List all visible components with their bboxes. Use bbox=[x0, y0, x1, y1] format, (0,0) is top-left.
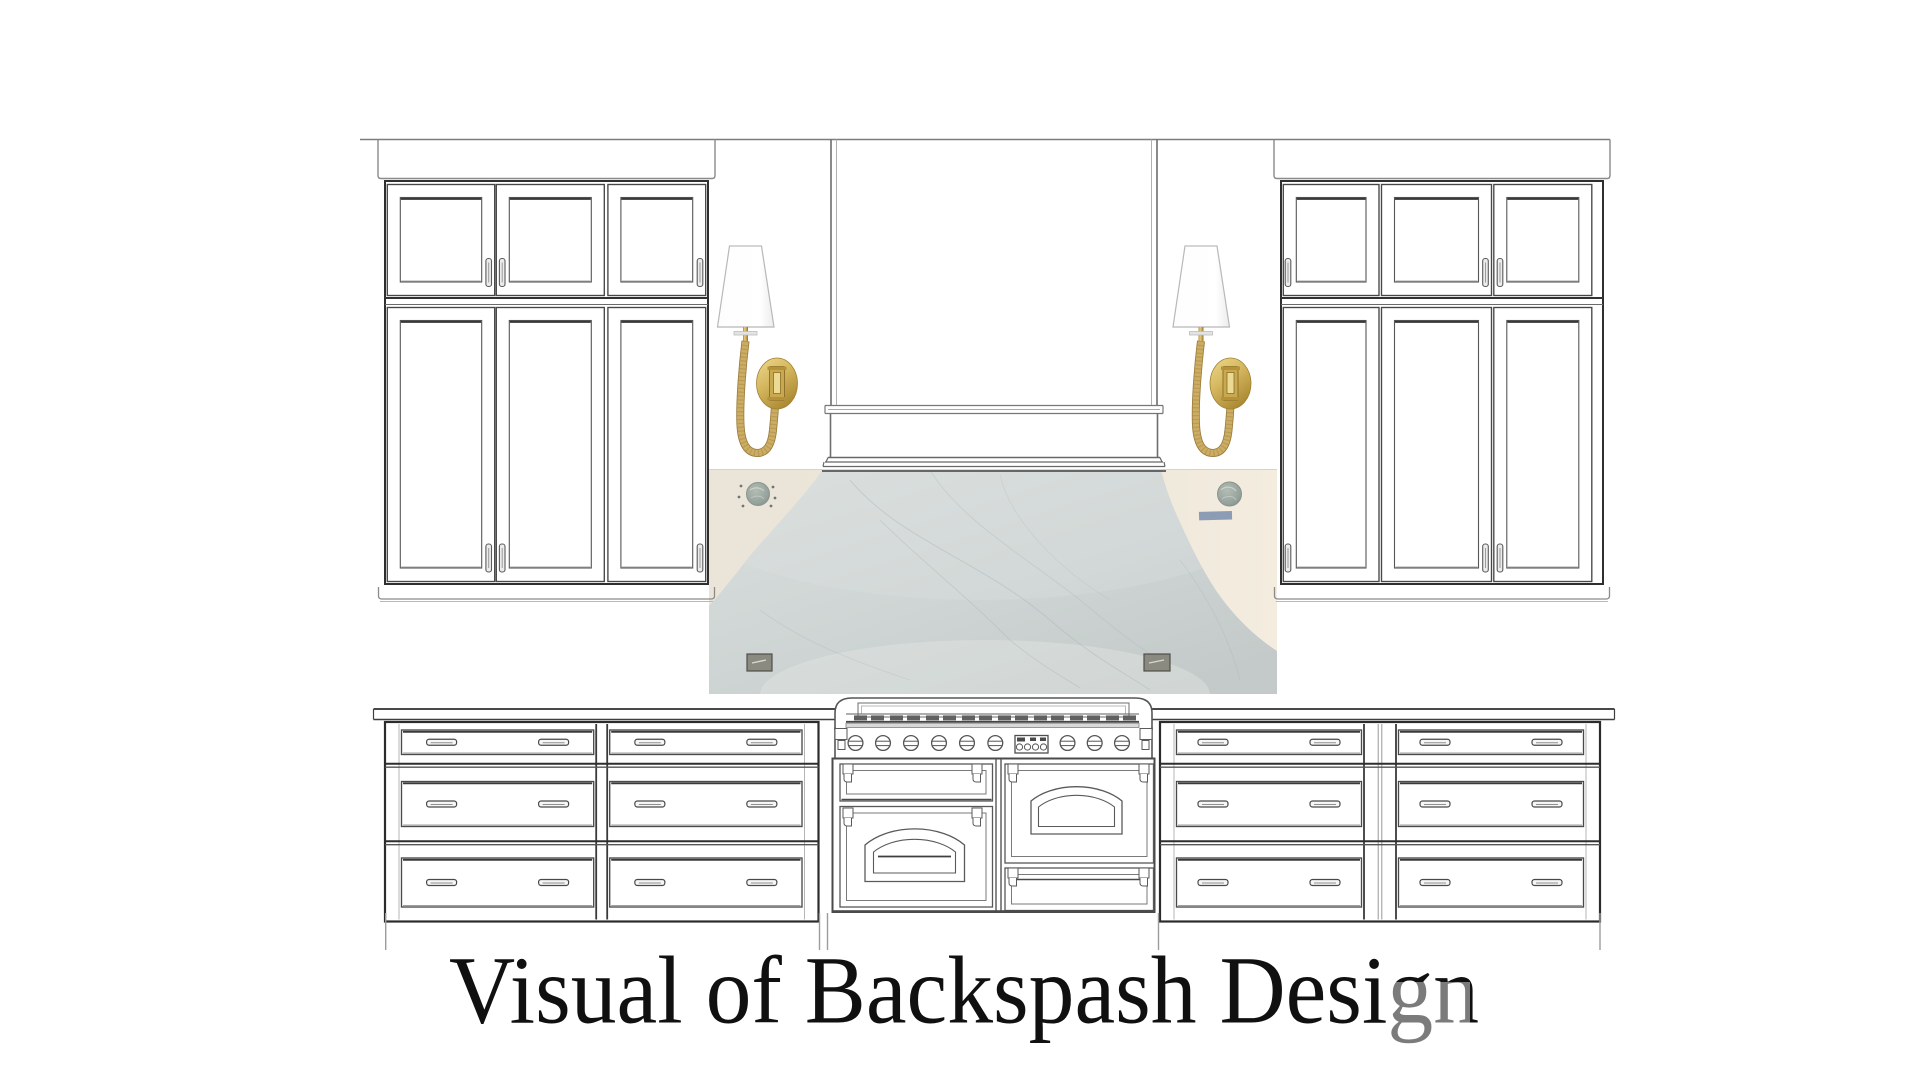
svg-text:Visual of Backspash Design: Visual of Backspash Design bbox=[449, 937, 1479, 1044]
